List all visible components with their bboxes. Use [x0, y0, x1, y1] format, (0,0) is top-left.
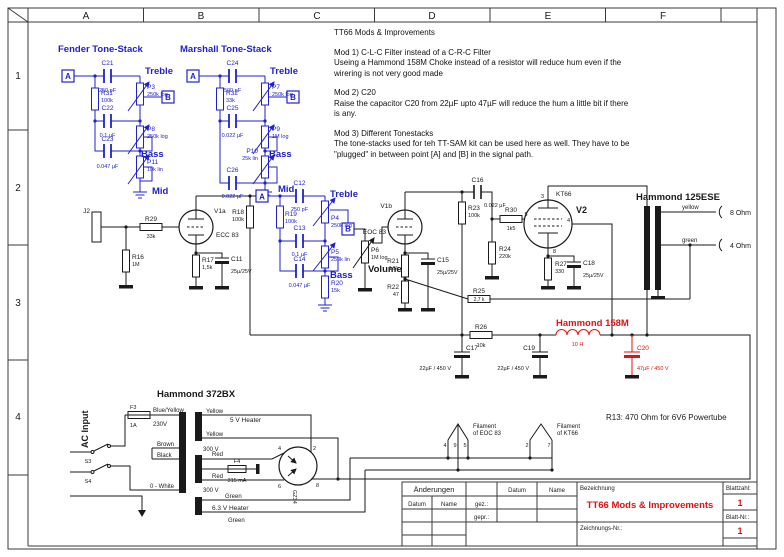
fil1-label2: of EOC 83	[473, 431, 502, 437]
ruler-col-f: F	[660, 11, 666, 22]
tb-title: TT66 Mods & Improvements	[587, 500, 714, 511]
fil2-label1: Filament	[557, 424, 580, 430]
stack-r20-ref: R20	[331, 280, 343, 287]
pt-300v-2: 300 V	[203, 488, 219, 494]
fender-c22-ref: C22	[102, 105, 114, 112]
marshall-c25-ref: C25	[227, 105, 239, 112]
tb-zeichnungsnr: Zeichnungs-Nr.:	[580, 526, 623, 532]
fil2-pin7: 7	[547, 443, 550, 449]
fender-r31-val: 100k	[101, 98, 113, 104]
stack-c12-ref: C12	[294, 180, 306, 187]
r22-val: 47	[393, 292, 399, 298]
c15-val: 25µ/25V	[437, 270, 458, 276]
mods-notes: TT66 Mods & Improvements Mod 1) C-L-C Fi…	[334, 28, 634, 160]
r18-val: 100k	[232, 217, 244, 223]
ac-input-label: AC Input	[80, 411, 90, 449]
fil1-pin4: 4	[443, 443, 446, 449]
stack-c14-val: 0.047 µF	[289, 283, 311, 289]
kt66-pin4: 4	[567, 218, 570, 224]
pt-brown: Brown	[157, 442, 174, 448]
tb-blattnr-val: 1	[737, 526, 742, 536]
r29-ref: R29	[145, 216, 157, 223]
pt-red2: Red	[212, 474, 223, 480]
v1a-label: V1a	[214, 208, 226, 215]
r30-val: 1k5	[507, 226, 516, 232]
r22-ref: R22	[387, 284, 399, 291]
stack-r20-val: 15k	[331, 288, 340, 294]
ruler-row-4: 4	[15, 412, 21, 423]
tb-datum2: Datum	[508, 488, 526, 494]
ruler-col-d: D	[428, 11, 435, 22]
r27-ref: R27	[555, 261, 567, 268]
f4-val: 315 mA	[228, 478, 247, 484]
tb-aenderungen: Änderungen	[414, 485, 455, 494]
stack-treble: Treble	[330, 189, 358, 200]
j2-label: J2	[83, 208, 90, 215]
main-circuit-schematic	[92, 185, 750, 479]
r25-val: 2,7 k	[474, 297, 485, 303]
fender-c21-ref: C21	[102, 60, 114, 67]
marshall-c25-val: 0.022 µF	[222, 133, 244, 139]
rect-pin8: 8	[316, 483, 319, 489]
main-a-label: A	[259, 193, 265, 202]
pt-red1: Red	[212, 452, 223, 458]
f4-ref: F4	[234, 459, 240, 465]
c17-val: 22µF / 450 V	[419, 366, 451, 372]
c19-val: 22µF / 450 V	[497, 366, 529, 372]
v1b-label: V1b	[380, 203, 392, 210]
choke-and-c20-schematic	[556, 330, 640, 376]
marshall-treble: Treble	[270, 66, 298, 77]
mod2-heading: Mod 2) C20	[334, 88, 634, 99]
tb-bezeichnung: Bezeichnung	[580, 486, 615, 492]
r17-ref: R17	[202, 257, 214, 264]
opt-title: Hammond 125ESE	[636, 192, 720, 203]
r30-ref: R30	[505, 207, 517, 214]
fil2-pin2: 2	[525, 443, 528, 449]
fender-title: Fender Tone-Stack	[58, 44, 144, 55]
v1b-type: EOC 83	[363, 229, 387, 236]
r23-ref: R23	[468, 205, 480, 212]
r21-val: 1,5k	[389, 266, 400, 272]
c16-val: 0.022 µF	[484, 203, 506, 209]
r27-val: 330	[555, 269, 564, 275]
fil1-label1: Filament	[473, 424, 496, 430]
tb-name2: Name	[549, 488, 566, 494]
stack-c14-ref: C14	[294, 256, 306, 263]
rect-pin4: 4	[278, 446, 281, 452]
fil2-label2: of KT66	[557, 431, 579, 437]
rect-type: GZ34	[291, 490, 297, 504]
ruler-row-3: 3	[15, 298, 21, 309]
ruler-col-b: B	[198, 11, 205, 22]
marshall-p7-ref: P7	[272, 84, 280, 91]
fender-c23-ref: C23	[102, 136, 114, 143]
pt-63vheater: 6.3 V Heater	[212, 505, 249, 512]
pt-yellow2: Yellow	[206, 432, 224, 438]
c20-val: 47µF / 450 V	[637, 366, 669, 372]
mod3-heading: Mod 3) Different Tonestacks	[334, 129, 634, 140]
v1a-type: ECC 83	[216, 232, 239, 239]
choke-title: Hammond 158M	[556, 318, 629, 329]
marshall-b-label: B	[290, 93, 296, 102]
kt66-pin3: 3	[541, 194, 544, 200]
kt66-type: KT66	[556, 191, 572, 198]
tb-gepr: gepr.:	[474, 515, 489, 521]
r21-ref: R21	[387, 258, 399, 265]
marshall-mid: Mid	[278, 184, 295, 195]
c11-ref: C11	[231, 256, 243, 263]
fender-p11-val: 10k lin	[147, 167, 163, 173]
fender-p3-ref: P3	[147, 84, 155, 91]
ruler-row-2: 2	[15, 183, 21, 194]
pt-green2: Green	[228, 518, 245, 524]
c16-ref: C16	[472, 177, 484, 184]
marshall-a-label: A	[190, 72, 196, 81]
fender-b-label: B	[165, 93, 171, 102]
fender-treble: Treble	[145, 66, 173, 77]
kt66-pin8: 8	[553, 249, 556, 255]
fender-p8-val: 250k log	[147, 134, 168, 140]
ruler-col-e: E	[545, 11, 552, 22]
main-b-label: B	[345, 225, 351, 234]
tb-blattzahl: Blattzahl:	[726, 486, 751, 492]
pt-blueyellow: Blue/Yellow	[153, 408, 184, 414]
marshall-p10-ref: P10	[246, 148, 258, 155]
fender-mid: Mid	[152, 186, 169, 197]
stack-p5-ref: P5	[331, 249, 339, 256]
marshall-r32-val: 33k	[226, 98, 235, 104]
f3-val: 1A	[130, 423, 137, 429]
pt-yellow1: Yellow	[206, 409, 224, 415]
fil1-pin5: 5	[463, 443, 466, 449]
marshall-p10-val: 25k lin	[242, 156, 258, 162]
opt-green: green	[682, 238, 697, 244]
mod3-body: The tone-stacks used for teh TT-SAM kit …	[334, 139, 634, 160]
pt-green1: Green	[225, 494, 242, 500]
ruler-row-1: 1	[15, 71, 21, 82]
tb-blattzahl-val: 1	[737, 498, 742, 508]
marshall-c24-ref: C24	[227, 60, 239, 67]
ruler-col-a: A	[83, 11, 90, 22]
c20-ref: C20	[637, 345, 649, 352]
marshall-bass: Bass	[269, 149, 292, 160]
opt-8ohm: 8 Ohm	[730, 210, 751, 217]
marshall-p9-val: 1M log	[272, 134, 289, 140]
fender-c23-val: 0.047 µF	[97, 164, 119, 170]
c18-val: 25µ/25V	[583, 273, 604, 279]
stack-p4-ref: P4	[331, 215, 339, 222]
v2-label: V2	[576, 205, 587, 215]
pt-title: Hammond 372BX	[157, 389, 236, 400]
c11-val: 25µ/25V	[231, 269, 252, 275]
c19-ref: C19	[523, 345, 535, 352]
pt-230v: 230V	[153, 422, 167, 428]
mod1-heading: Mod 1) C-L-C Filter instead of a C-R-C F…	[334, 48, 634, 59]
mod1-body: Useing a Hammond 158M Choke instead of a…	[334, 58, 634, 79]
rect-pin6: 6	[278, 484, 281, 490]
mods-title: TT66 Mods & Improvements	[334, 28, 634, 39]
s4-label: S4	[85, 479, 92, 485]
p6-ref: P6	[371, 247, 379, 254]
marshall-c26-ref: C26	[227, 167, 239, 174]
stack-p5-val: 250k lin	[331, 257, 350, 263]
rect-pin2: 2	[313, 446, 316, 452]
tb-gez: gez.:	[475, 502, 488, 508]
r16-val: 1M	[132, 262, 140, 268]
r16-ref: R16	[132, 254, 144, 261]
r26-ref: R26	[475, 324, 487, 331]
mod2-body: Raise the capacitor C20 from 22µF upto 4…	[334, 99, 634, 120]
marshall-p9-ref: P9	[272, 126, 280, 133]
stack-c12-val: 250 pF	[291, 207, 309, 213]
f3-ref: F3	[130, 405, 136, 411]
r23-val: 100k	[468, 213, 480, 219]
r24-val: 220k	[499, 254, 511, 260]
p6-val: 1M log	[371, 255, 388, 261]
opt-4ohm: 4 Ohm	[730, 243, 751, 250]
fender-a-label: A	[65, 72, 71, 81]
ruler-col-c: C	[313, 11, 320, 22]
c15-ref: C15	[437, 257, 449, 264]
fender-p8-ref: P8	[147, 126, 155, 133]
r24-ref: R24	[499, 246, 511, 253]
schematic-sheet: ABCDEF1234Fender Tone-StackAC21250 pFR31…	[0, 0, 784, 557]
kt66-pin5: 5	[524, 212, 527, 218]
fender-p11-ref: P11	[147, 159, 158, 166]
marshall-c26-val: 0.022 µF	[222, 194, 244, 200]
pt-0white: 0 - White	[150, 484, 175, 490]
r17-val: 1,5k	[202, 265, 213, 271]
pt-black: Black	[157, 453, 173, 459]
tb-blattnr: Blatt-Nr.:	[726, 515, 750, 521]
opt-yellow: yellow	[682, 205, 699, 211]
fil1-pin9: 9	[453, 443, 456, 449]
marshall-title: Marshall Tone-Stack	[180, 44, 272, 55]
s3-label: S3	[85, 459, 92, 465]
fender-r31-ref: R31	[101, 90, 113, 97]
choke-val: 10 H	[572, 342, 584, 348]
tb-datum1: Datum	[408, 502, 426, 508]
r25-ref: R25	[473, 288, 485, 295]
marshall-r32-ref: R32	[226, 90, 238, 97]
pt-5vheater: 5 V Heater	[230, 417, 262, 424]
r13-note: R13: 470 Ohm for 6V6 Powertube	[606, 413, 727, 422]
r29-val: 33k	[147, 234, 156, 240]
tb-name1: Name	[441, 502, 458, 508]
stack-c13-ref: C13	[294, 225, 306, 232]
c17-ref: C17	[466, 345, 478, 352]
r18-ref: R18	[232, 209, 244, 216]
c18-ref: C18	[583, 260, 595, 267]
